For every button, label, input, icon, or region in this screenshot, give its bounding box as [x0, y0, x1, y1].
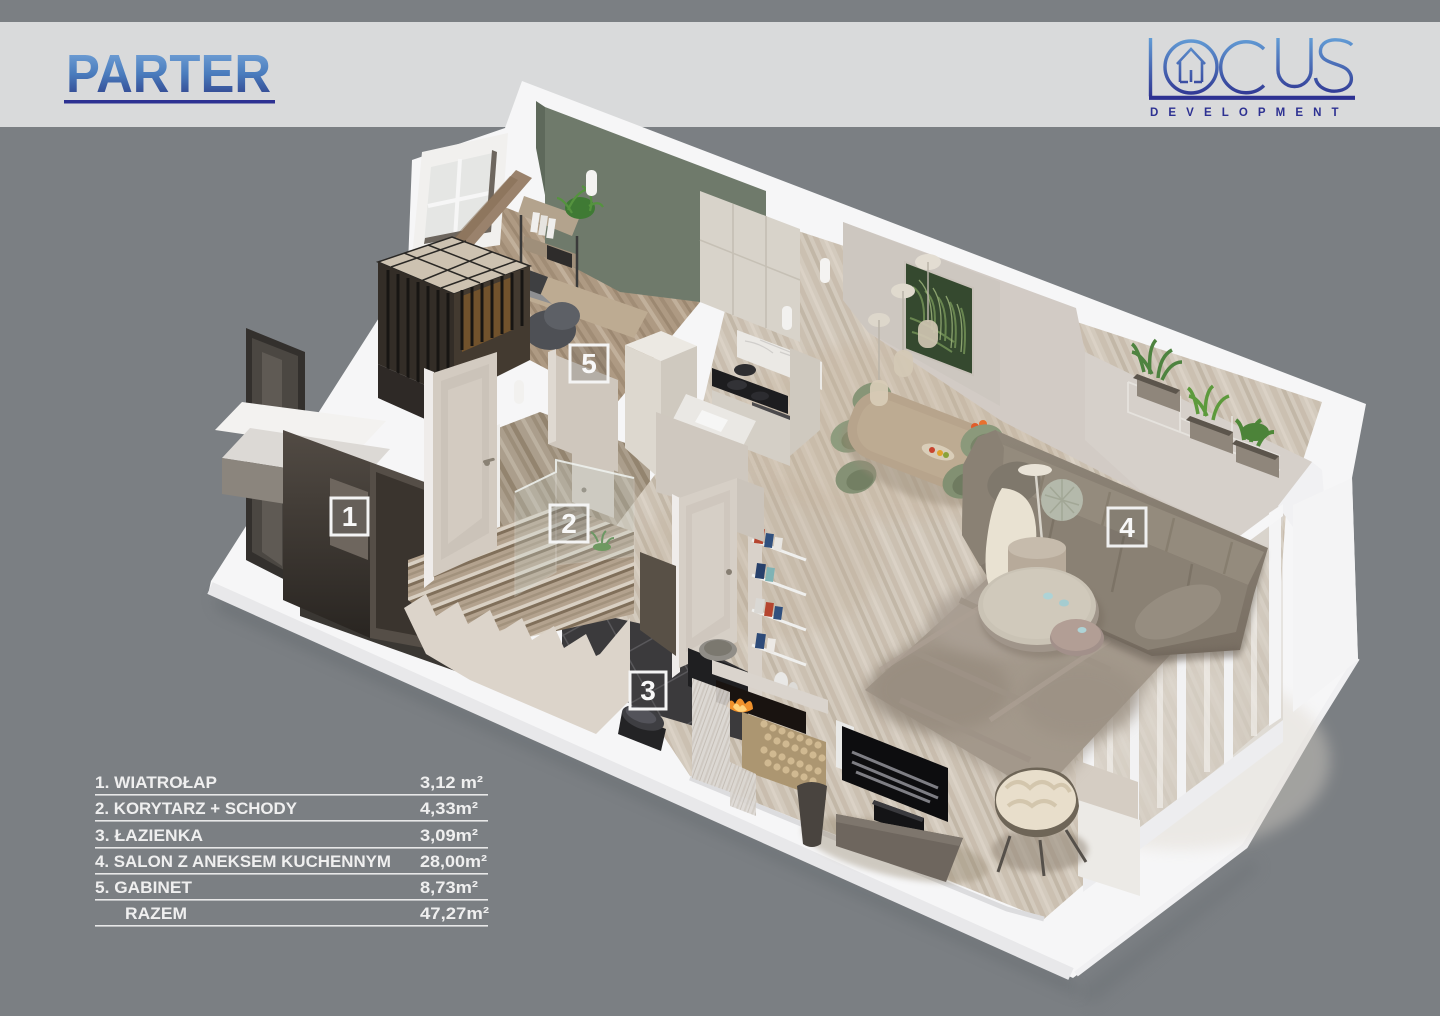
svg-text:DEVELOPMENT: DEVELOPMENT — [1150, 107, 1349, 119]
svg-text:3. ŁAZIENKA: 3. ŁAZIENKA — [95, 827, 203, 845]
svg-text:3,09m²: 3,09m² — [420, 827, 479, 845]
svg-text:4: 4 — [1119, 512, 1135, 543]
svg-text:1: 1 — [342, 501, 358, 532]
svg-text:4,33m²: 4,33m² — [420, 800, 479, 818]
svg-text:47,27m²: 47,27m² — [420, 905, 490, 923]
svg-text:28,00m²: 28,00m² — [420, 853, 488, 871]
svg-text:3: 3 — [640, 675, 656, 706]
svg-text:4. SALON Z ANEKSEM KUCHENNYM: 4. SALON Z ANEKSEM KUCHENNYM — [95, 853, 391, 871]
svg-text:5: 5 — [581, 348, 597, 379]
svg-text:3,12 m²: 3,12 m² — [420, 774, 484, 792]
svg-text:5. GABINET: 5. GABINET — [95, 879, 192, 897]
svg-text:PARTER: PARTER — [66, 44, 271, 104]
svg-text:2: 2 — [561, 508, 577, 539]
svg-text:1. WIATROŁAP: 1. WIATROŁAP — [95, 774, 217, 792]
svg-text:2. KORYTARZ + SCHODY: 2. KORYTARZ + SCHODY — [95, 800, 297, 818]
svg-text:8,73m²: 8,73m² — [420, 879, 479, 897]
svg-text:RAZEM: RAZEM — [125, 905, 187, 923]
